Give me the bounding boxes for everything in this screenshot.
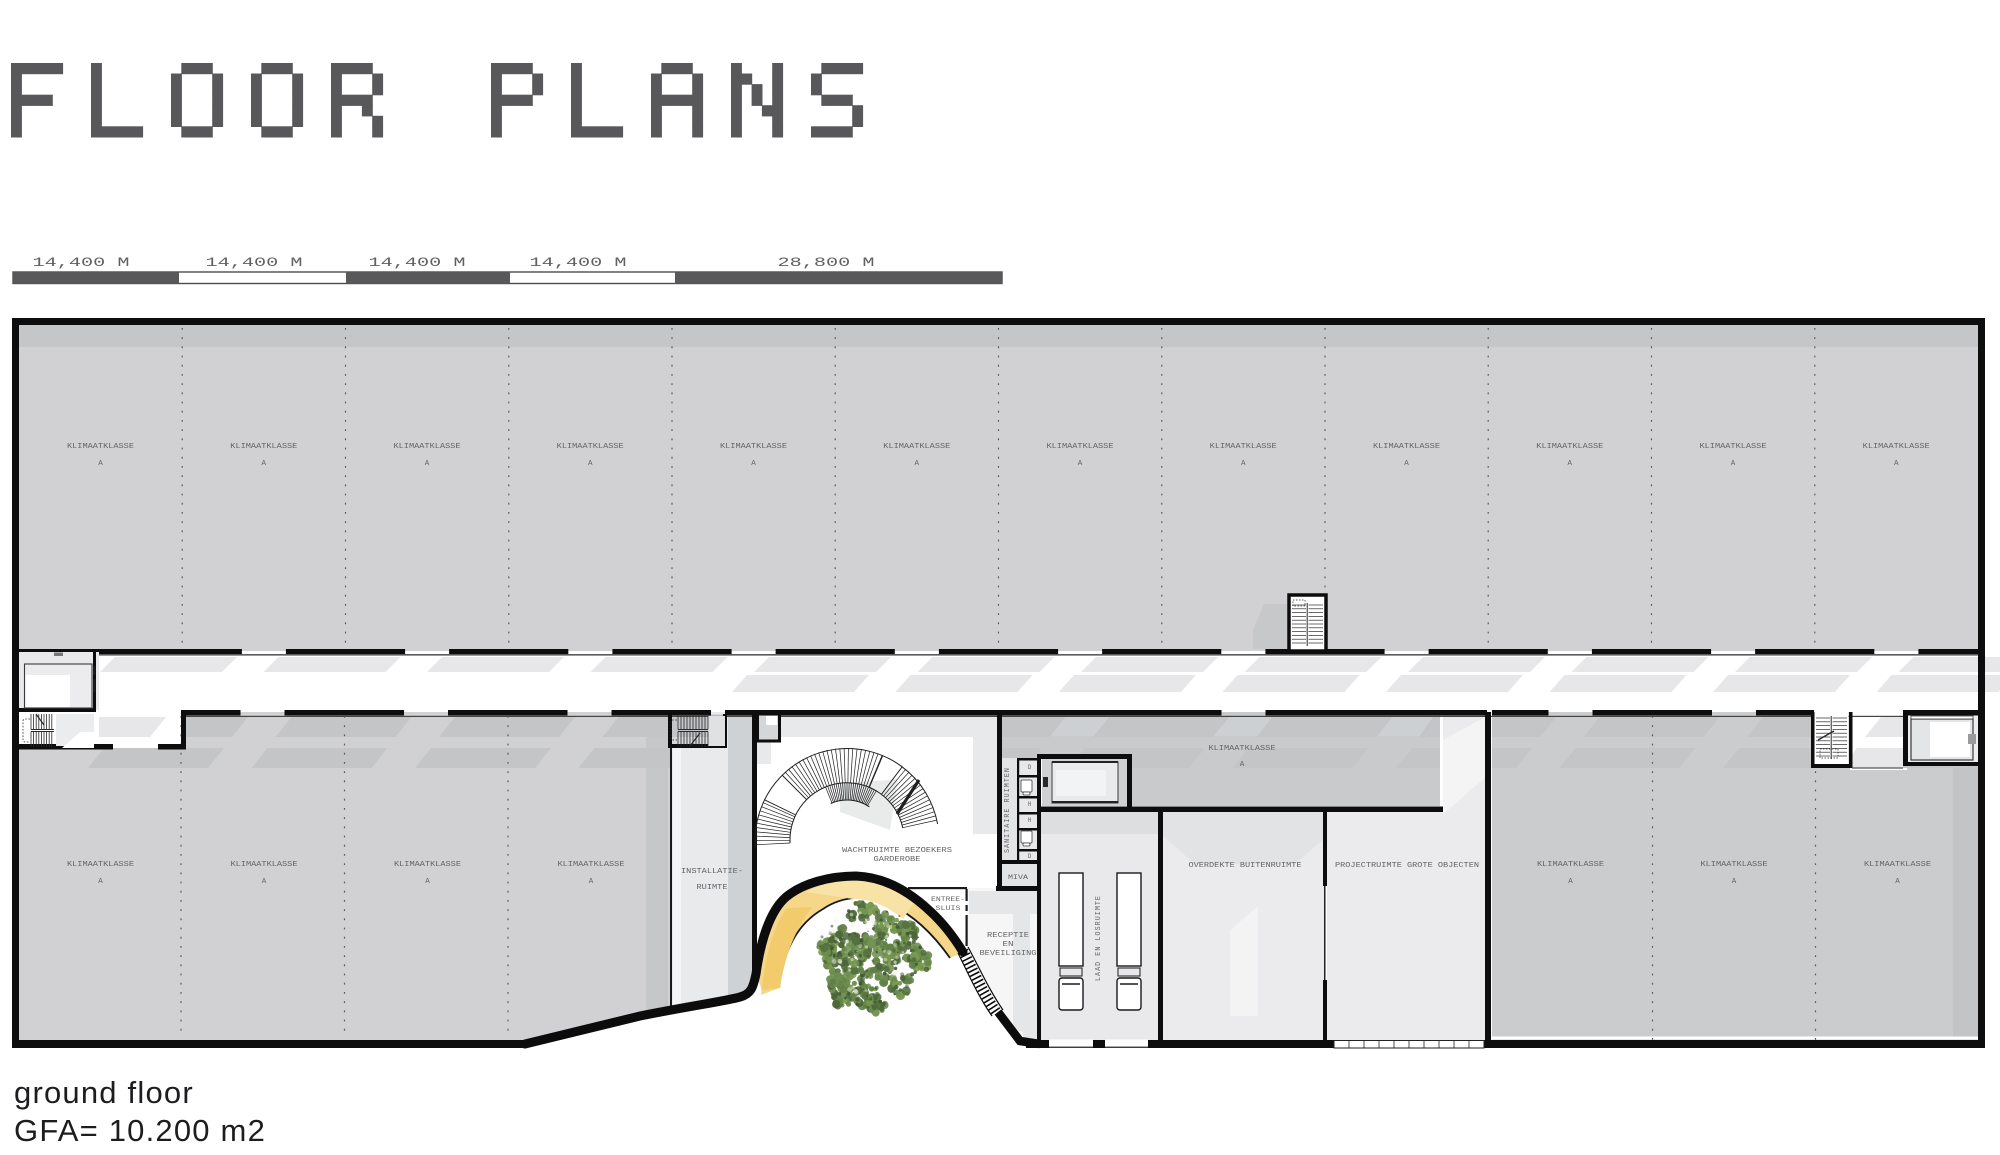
svg-text:SANITAIRE RUIMTEN: SANITAIRE RUIMTEN — [1004, 767, 1012, 853]
svg-text:KLIMAATKLASSE: KLIMAATKLASSE — [394, 861, 462, 869]
svg-text:KLIMAATKLASSE: KLIMAATKLASSE — [1864, 861, 1932, 869]
svg-text:KLIMAATKLASSE: KLIMAATKLASSE — [230, 443, 298, 451]
svg-text:A: A — [425, 878, 430, 886]
svg-text:A: A — [589, 878, 594, 886]
svg-text:A: A — [1731, 460, 1736, 468]
svg-text:A: A — [262, 460, 267, 468]
svg-text:BEVEILIGING: BEVEILIGING — [980, 950, 1038, 958]
svg-text:MIVA: MIVA — [1008, 874, 1029, 881]
svg-text:OVERDEKTE BUITENRUIMTE: OVERDEKTE BUITENRUIMTE — [1189, 862, 1303, 870]
svg-text:14,400 M: 14,400 M — [33, 255, 130, 270]
svg-text:14,400 M: 14,400 M — [206, 255, 303, 270]
svg-text:14,400 M: 14,400 M — [369, 255, 466, 270]
svg-text:KLIMAATKLASSE: KLIMAATKLASSE — [1537, 861, 1605, 869]
svg-text:A: A — [1568, 878, 1573, 886]
svg-text:A: A — [1895, 878, 1900, 886]
svg-text:A: A — [262, 878, 267, 886]
svg-text:KLIMAATKLASSE: KLIMAATKLASSE — [883, 443, 951, 451]
svg-text:A: A — [98, 460, 103, 468]
svg-text:KLIMAATKLASSE: KLIMAATKLASSE — [1210, 443, 1278, 451]
svg-text:KLIMAATKLASSE: KLIMAATKLASSE — [1209, 745, 1277, 753]
svg-text:A: A — [1240, 761, 1245, 769]
svg-text:A: A — [1732, 878, 1737, 886]
svg-text:KLIMAATKLASSE: KLIMAATKLASSE — [1373, 443, 1441, 451]
svg-text:KLIMAATKLASSE: KLIMAATKLASSE — [1536, 443, 1604, 451]
svg-text:KLIMAATKLASSE: KLIMAATKLASSE — [1047, 443, 1115, 451]
svg-text:D: D — [1028, 764, 1032, 771]
svg-text:D: D — [1028, 853, 1032, 860]
svg-text:A: A — [915, 460, 920, 468]
svg-text:A: A — [1894, 460, 1899, 468]
svg-text:A: A — [751, 460, 756, 468]
svg-text:A: A — [98, 878, 103, 886]
svg-text:28,800 M: 28,800 M — [778, 255, 875, 270]
svg-text:KLIMAATKLASSE: KLIMAATKLASSE — [557, 443, 625, 451]
svg-text:A: A — [425, 460, 430, 468]
svg-text:KLIMAATKLASSE: KLIMAATKLASSE — [720, 443, 788, 451]
svg-text:ground floor: ground floor — [14, 1075, 194, 1110]
svg-text:KLIMAATKLASSE: KLIMAATKLASSE — [1700, 443, 1768, 451]
svg-text:KLIMAATKLASSE: KLIMAATKLASSE — [1863, 443, 1931, 451]
svg-text:KLIMAATKLASSE: KLIMAATKLASSE — [67, 861, 135, 869]
svg-text:KLIMAATKLASSE: KLIMAATKLASSE — [1701, 861, 1769, 869]
svg-text:SLUIS: SLUIS — [936, 905, 961, 912]
svg-text:LAAD EN LOSRUIMTE: LAAD EN LOSRUIMTE — [1095, 895, 1103, 981]
svg-text:A: A — [1078, 460, 1083, 468]
svg-text:EN: EN — [1003, 941, 1014, 949]
svg-text:KLIMAATKLASSE: KLIMAATKLASSE — [558, 861, 626, 869]
svg-text:GARDEROBE: GARDEROBE — [874, 856, 922, 864]
svg-text:A: A — [1568, 460, 1573, 468]
svg-text:GFA= 10.200 m2: GFA= 10.200 m2 — [14, 1113, 266, 1148]
svg-text:WACHTRUIMTE BEZOEKERS: WACHTRUIMTE BEZOEKERS — [842, 847, 953, 855]
svg-text:A: A — [588, 460, 593, 468]
svg-text:A: A — [1241, 460, 1246, 468]
svg-text:KLIMAATKLASSE: KLIMAATKLASSE — [394, 443, 462, 451]
svg-text:KLIMAATKLASSE: KLIMAATKLASSE — [231, 861, 299, 869]
svg-text:RUIMTE: RUIMTE — [697, 884, 729, 892]
svg-text:H: H — [1028, 801, 1032, 808]
svg-text:PROJECTRUIMTE GROTE OBJECTEN: PROJECTRUIMTE GROTE OBJECTEN — [1335, 862, 1479, 870]
svg-text:A: A — [1404, 460, 1409, 468]
svg-text:RECEPTIE: RECEPTIE — [987, 932, 1030, 940]
svg-text:KLIMAATKLASSE: KLIMAATKLASSE — [67, 443, 135, 451]
svg-text:INSTALLATIE-: INSTALLATIE- — [681, 868, 743, 876]
svg-text:14,400 M: 14,400 M — [530, 255, 627, 270]
svg-text:H: H — [1028, 817, 1032, 824]
svg-text:ENTREE-: ENTREE- — [931, 896, 965, 903]
